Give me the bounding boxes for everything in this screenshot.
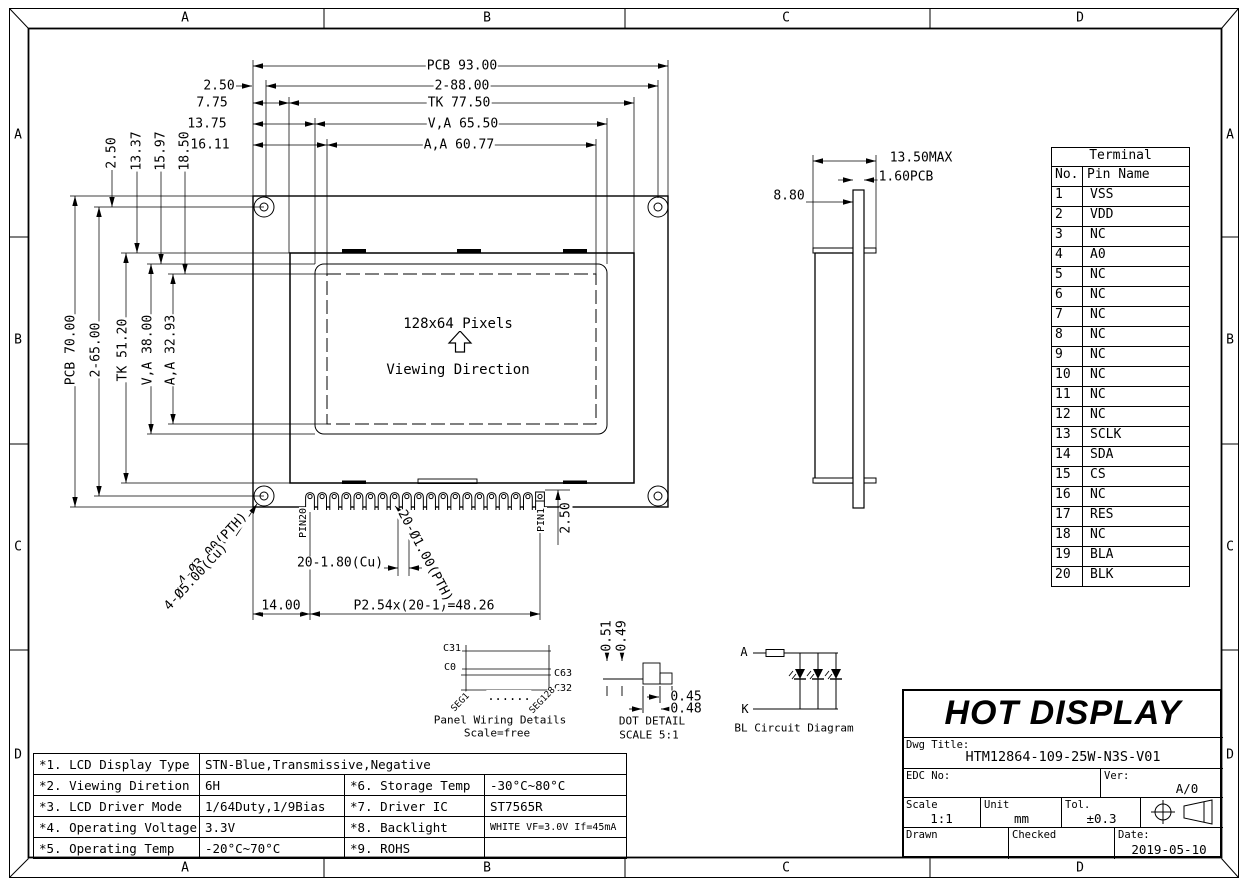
dim-va-width: V,A 65.50 bbox=[427, 118, 499, 131]
ver-value: A/0 bbox=[1126, 781, 1248, 796]
wiring-c63: C63 bbox=[553, 669, 573, 679]
pin-hole bbox=[417, 494, 421, 498]
tol-label: Tol. bbox=[1065, 799, 1090, 811]
terminal-row: 19BLA bbox=[1052, 546, 1189, 566]
pin-number: 11 bbox=[1052, 387, 1083, 406]
spec-value: -20°C~70°C bbox=[200, 838, 345, 858]
zone-letter-c: C bbox=[14, 541, 22, 554]
spec-table: *1. LCD Display TypeSTN-Blue,Transmissiv… bbox=[33, 753, 627, 859]
dot-dim-051: 0.51 bbox=[601, 619, 614, 652]
pin-number: 9 bbox=[1052, 347, 1083, 366]
date-cell: Date: 2019-05-10 bbox=[1114, 827, 1223, 859]
scale-cell: Scale 1:1 bbox=[903, 797, 980, 827]
pin-name: BLK bbox=[1083, 567, 1189, 586]
dim-hole-offset-h: 2.50 bbox=[202, 80, 235, 93]
pin-hole bbox=[441, 494, 445, 498]
zone-letter-c: C bbox=[782, 862, 790, 875]
viewing-direction-label: Viewing Direction bbox=[385, 363, 530, 377]
dim-pcb-thickness: 1.60PCB bbox=[878, 171, 935, 184]
spec-value: ST7565R bbox=[485, 796, 624, 816]
terminal-col-pin: Pin Name bbox=[1083, 167, 1189, 186]
terminal-row: 18NC bbox=[1052, 526, 1189, 546]
wiring-title: Panel Wiring Details bbox=[433, 715, 567, 726]
pin-name: NC bbox=[1083, 487, 1189, 506]
drawing-sheet: PCB 93.002-88.002.50TK 77.507.75V,A 65.5… bbox=[0, 0, 1249, 889]
zone-letter-c: C bbox=[1226, 541, 1234, 554]
pin-number: 2 bbox=[1052, 207, 1083, 226]
bl-circuit-diagram bbox=[753, 650, 842, 710]
terminal-row: 20BLK bbox=[1052, 566, 1189, 586]
zone-letter-b: B bbox=[483, 862, 491, 875]
terminal-row: 1VSS bbox=[1052, 186, 1189, 206]
pin-name: NC bbox=[1083, 407, 1189, 426]
pin-hole bbox=[308, 494, 312, 498]
pin-hole bbox=[429, 494, 433, 498]
terminal-row: 10NC bbox=[1052, 366, 1189, 386]
pin-number: 12 bbox=[1052, 407, 1083, 426]
dim-tk-offset-h: 7.75 bbox=[195, 97, 228, 110]
checked-cell: Checked bbox=[1008, 827, 1115, 859]
scale-value: 1:1 bbox=[903, 811, 980, 826]
wiring-c0: C0 bbox=[443, 663, 457, 673]
zone-letter-a: A bbox=[14, 129, 22, 142]
pin-name: NC bbox=[1083, 227, 1189, 246]
pin-name: NC bbox=[1083, 307, 1189, 326]
checked-label: Checked bbox=[1012, 829, 1056, 841]
pin-number: 3 bbox=[1052, 227, 1083, 246]
company-cell: HOT DISPLAY bbox=[903, 690, 1223, 738]
zone-letter-d: D bbox=[14, 749, 22, 762]
unit-value: mm bbox=[981, 811, 1062, 826]
edc-cell: EDC No: bbox=[903, 768, 1100, 797]
zone-letter-d: D bbox=[1226, 749, 1234, 762]
dim-pcb-height: PCB 70.00 bbox=[65, 314, 78, 386]
spec-label: *1. LCD Display Type bbox=[34, 754, 200, 774]
spec-value: -30°C~80°C bbox=[485, 775, 624, 795]
spec-label: *7. Driver IC bbox=[345, 796, 485, 816]
dim-total-thickness: 13.50MAX bbox=[889, 152, 954, 165]
pin20-label: PIN20 bbox=[299, 507, 309, 539]
date-label: Date: bbox=[1118, 829, 1150, 841]
terminal-row: 8NC bbox=[1052, 326, 1189, 346]
pin-name: NC bbox=[1083, 267, 1189, 286]
pin-hole bbox=[332, 494, 336, 498]
pin-number: 20 bbox=[1052, 567, 1083, 586]
pin-hole bbox=[514, 494, 518, 498]
dim-tk-width: TK 77.50 bbox=[427, 97, 492, 110]
zone-letter-d: D bbox=[1076, 12, 1084, 25]
side-view bbox=[806, 155, 879, 508]
terminal-row: 13SCLK bbox=[1052, 426, 1189, 446]
pin-hole bbox=[393, 494, 397, 498]
terminal-row: 14SDA bbox=[1052, 446, 1189, 466]
dot-detail-title: DOT DETAIL bbox=[618, 716, 686, 727]
spec-value: 6H bbox=[200, 775, 345, 795]
zone-letter-d: D bbox=[1076, 862, 1084, 875]
terminal-row: 4A0 bbox=[1052, 246, 1189, 266]
terminal-row: 6NC bbox=[1052, 286, 1189, 306]
terminal-row: 12NC bbox=[1052, 406, 1189, 426]
pin-hole bbox=[344, 494, 348, 498]
zone-letter-a: A bbox=[181, 862, 189, 875]
dot-detail-scale: SCALE 5:1 bbox=[618, 730, 680, 741]
company-logo-text: HOT DISPLAY bbox=[903, 690, 1223, 736]
zone-letter-a: A bbox=[181, 12, 189, 25]
dim-aa-offset-h: 16.11 bbox=[189, 139, 230, 152]
terminal-row: 7NC bbox=[1052, 306, 1189, 326]
spec-label: *3. LCD Driver Mode bbox=[34, 796, 200, 816]
pin-hole bbox=[502, 494, 506, 498]
pin-number: 8 bbox=[1052, 327, 1083, 346]
zone-letter-a: A bbox=[1226, 129, 1234, 142]
dim-aa-width: A,A 60.77 bbox=[423, 139, 495, 152]
dwg-title-value: HTM12864-109-25W-N3S-V01 bbox=[903, 749, 1223, 765]
pin-hole bbox=[489, 494, 493, 498]
terminal-row: 16NC bbox=[1052, 486, 1189, 506]
spec-value: 1/64Duty,1/9Bias bbox=[200, 796, 345, 816]
pin-name: SCLK bbox=[1083, 427, 1189, 446]
date-value: 2019-05-10 bbox=[1115, 842, 1223, 857]
terminal-table-title: Terminal bbox=[1052, 148, 1189, 166]
led-symbols bbox=[789, 669, 842, 679]
terminal-row: 11NC bbox=[1052, 386, 1189, 406]
spec-label: *4. Operating Voltage bbox=[34, 817, 200, 837]
dim-pin-protrude: 2.50 bbox=[560, 501, 573, 534]
pin-name: A0 bbox=[1083, 247, 1189, 266]
pin-name: RES bbox=[1083, 507, 1189, 526]
pin-hole bbox=[320, 494, 324, 498]
side-bottom-lip bbox=[813, 478, 876, 483]
pin-hole bbox=[526, 494, 530, 498]
pin-hole bbox=[477, 494, 481, 498]
tol-cell: Tol. ±0.3 bbox=[1061, 797, 1141, 827]
pin-name: VSS bbox=[1083, 187, 1189, 206]
terminal-col-no: No. bbox=[1052, 167, 1083, 186]
spec-row: *5. Operating Temp-20°C~70°C*9. ROHS bbox=[34, 837, 626, 858]
unit-cell: Unit mm bbox=[980, 797, 1062, 827]
dim-tk-offset-v: 13.37 bbox=[131, 130, 144, 171]
terminal-table: Terminal No. Pin Name 1VSS2VDD3NC4A05NC6… bbox=[1051, 147, 1190, 587]
pin1-label: PIN1 bbox=[537, 507, 547, 533]
side-body bbox=[815, 253, 853, 483]
terminal-row: 3NC bbox=[1052, 226, 1189, 246]
dim-pin-margin: 14.00 bbox=[260, 600, 301, 613]
dim-pin-pitch: P2.54x(20-1)=48.26 bbox=[353, 600, 496, 613]
display-pixels-label: 128x64 Pixels bbox=[402, 317, 514, 331]
terminal-row: 9NC bbox=[1052, 346, 1189, 366]
terminal-row: 2VDD bbox=[1052, 206, 1189, 226]
pin-number: 10 bbox=[1052, 367, 1083, 386]
pin-number: 19 bbox=[1052, 547, 1083, 566]
spec-value: 3.3V bbox=[200, 817, 345, 837]
ver-cell: Ver: A/0 bbox=[1100, 768, 1223, 797]
pin-hole bbox=[465, 494, 469, 498]
bl-anode-label: A bbox=[739, 646, 748, 658]
pin-hole bbox=[405, 494, 409, 498]
wiring-dots: ...... bbox=[486, 690, 531, 702]
dim-hole-offset-v: 2.50 bbox=[106, 136, 119, 169]
pin-name: SDA bbox=[1083, 447, 1189, 466]
pin-hole bbox=[356, 494, 360, 498]
side-pcb-bar bbox=[853, 190, 864, 508]
unit-label: Unit bbox=[984, 799, 1009, 811]
pin-hole bbox=[453, 494, 457, 498]
drawn-label: Drawn bbox=[906, 829, 938, 841]
spec-row: *4. Operating Voltage3.3V*8. BacklightWH… bbox=[34, 816, 626, 837]
spec-label: *9. ROHS bbox=[345, 838, 485, 858]
spec-row: *2. Viewing Diretion6H*6. Storage Temp-3… bbox=[34, 774, 626, 795]
tol-value: ±0.3 bbox=[1062, 811, 1141, 826]
dim-pcb-width: PCB 93.00 bbox=[426, 60, 498, 73]
spec-row: *1. LCD Display TypeSTN-Blue,Transmissiv… bbox=[34, 754, 626, 774]
pin-number: 14 bbox=[1052, 447, 1083, 466]
dot-dim-049: 0.49 bbox=[616, 619, 629, 652]
zone-letter-b: B bbox=[1226, 334, 1234, 347]
pin-hole bbox=[381, 494, 385, 498]
wiring-c31: C31 bbox=[442, 644, 462, 654]
dwg-title-cell: Dwg Title: HTM12864-109-25W-N3S-V01 bbox=[903, 737, 1223, 768]
terminal-row: 17RES bbox=[1052, 506, 1189, 526]
spec-value: WHITE VF=3.0V If=45mA bbox=[485, 817, 624, 837]
bl-cathode-label: K bbox=[740, 703, 749, 715]
pin-number: 1 bbox=[1052, 187, 1083, 206]
pin-number: 7 bbox=[1052, 307, 1083, 326]
spec-label: *2. Viewing Diretion bbox=[34, 775, 200, 795]
dim-tk-height: TK 51.20 bbox=[117, 318, 130, 383]
wiring-scale: Scale=free bbox=[463, 728, 531, 739]
pin-name: NC bbox=[1083, 327, 1189, 346]
pin-number: 18 bbox=[1052, 527, 1083, 546]
pin-name: CS bbox=[1083, 467, 1189, 486]
dim-aa-height: A,A 32.93 bbox=[165, 314, 178, 386]
dim-aa-offset-v: 18.50 bbox=[179, 130, 192, 171]
zone-letter-b: B bbox=[483, 12, 491, 25]
bl-circuit-title: BL Circuit Diagram bbox=[733, 723, 854, 734]
dim-va-offset-h: 13.75 bbox=[186, 118, 227, 131]
edc-label: EDC No: bbox=[906, 770, 950, 782]
pin-hole bbox=[538, 494, 542, 498]
pin-name: BLA bbox=[1083, 547, 1189, 566]
pin-number: 16 bbox=[1052, 487, 1083, 506]
dim-hole-span-v: 2-65.00 bbox=[90, 322, 103, 379]
zone-letter-b: B bbox=[14, 334, 22, 347]
dim-va-height: V,A 38.00 bbox=[142, 314, 155, 386]
pin-name: VDD bbox=[1083, 207, 1189, 226]
dim-pad-width: 20-1.80(Cu) bbox=[296, 557, 384, 570]
dim-body-depth: 8.80 bbox=[772, 190, 805, 203]
zone-letter-c: C bbox=[782, 12, 790, 25]
projection-cell bbox=[1140, 797, 1223, 827]
spec-value: STN-Blue,Transmissive,Negative bbox=[200, 754, 626, 774]
spec-value bbox=[485, 838, 624, 858]
pin-name: NC bbox=[1083, 347, 1189, 366]
dim-hole-span-h: 2-88.00 bbox=[434, 80, 491, 93]
dim-va-offset-v: 15.97 bbox=[155, 130, 168, 171]
pin-number: 17 bbox=[1052, 507, 1083, 526]
pin-name: NC bbox=[1083, 527, 1189, 546]
terminal-row: 5NC bbox=[1052, 266, 1189, 286]
side-top-lip bbox=[813, 248, 876, 253]
terminal-row: 15CS bbox=[1052, 466, 1189, 486]
pin-name: NC bbox=[1083, 287, 1189, 306]
pin-number: 6 bbox=[1052, 287, 1083, 306]
title-block: HOT DISPLAY Dwg Title: HTM12864-109-25W-… bbox=[902, 689, 1222, 858]
pin-hole bbox=[368, 494, 372, 498]
pin-number: 5 bbox=[1052, 267, 1083, 286]
spec-row: *3. LCD Driver Mode1/64Duty,1/9Bias*7. D… bbox=[34, 795, 626, 816]
pin-number: 15 bbox=[1052, 467, 1083, 486]
pin-name: NC bbox=[1083, 387, 1189, 406]
spec-label: *8. Backlight bbox=[345, 817, 485, 837]
drawn-cell: Drawn bbox=[903, 827, 1009, 859]
scale-label: Scale bbox=[906, 799, 938, 811]
spec-label: *6. Storage Temp bbox=[345, 775, 485, 795]
pin-name: NC bbox=[1083, 367, 1189, 386]
pin-number: 4 bbox=[1052, 247, 1083, 266]
pin-number: 13 bbox=[1052, 427, 1083, 446]
spec-label: *5. Operating Temp bbox=[34, 838, 200, 858]
